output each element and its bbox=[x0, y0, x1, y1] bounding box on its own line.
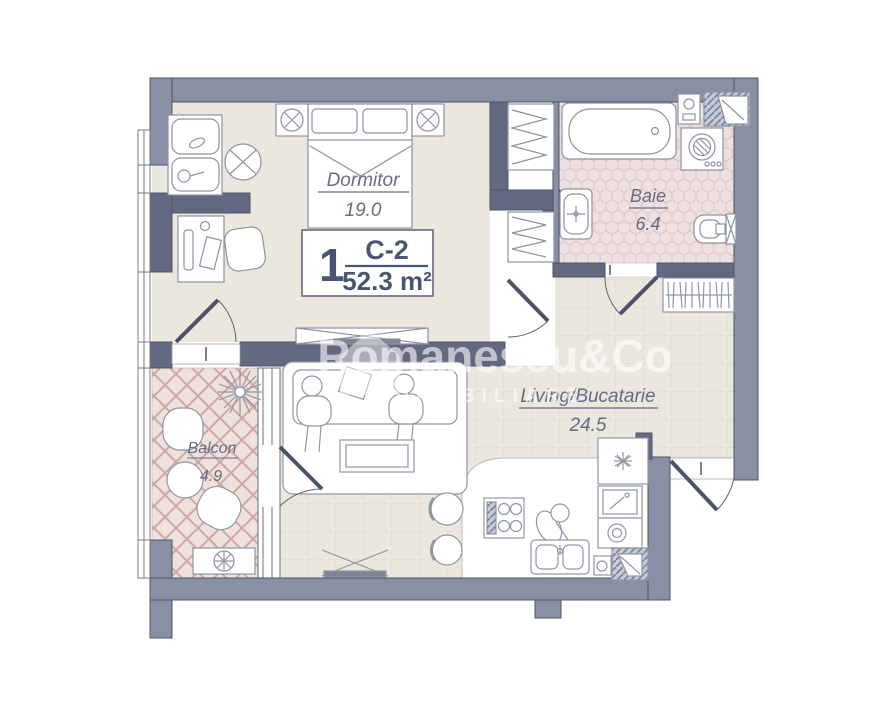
wall-top bbox=[150, 78, 758, 102]
wall-bottom-stub bbox=[535, 600, 561, 618]
label-balcon: Balcon bbox=[188, 440, 237, 457]
kitchen-hob bbox=[598, 438, 648, 484]
coffee-table bbox=[340, 440, 414, 472]
area-living: 24.5 bbox=[569, 415, 607, 436]
kitchen-double-sink bbox=[531, 540, 589, 574]
bathroom-sink bbox=[560, 189, 592, 239]
wall-left-pier bbox=[150, 193, 172, 272]
wall-bath-bottom-left bbox=[553, 263, 605, 277]
wall-bedroom-right bbox=[490, 102, 508, 192]
wall-balcony-corner bbox=[150, 342, 172, 368]
nightstand-lamp-left bbox=[276, 104, 308, 136]
desk-chair bbox=[223, 226, 266, 273]
window-left-band bbox=[138, 130, 150, 578]
area-dormitor: 19.0 bbox=[345, 200, 382, 221]
watermark-tagline: IMOBILIARE bbox=[404, 386, 586, 407]
unit-code: C-2 bbox=[365, 235, 409, 265]
label-baie: Baie bbox=[630, 186, 666, 206]
stove bbox=[484, 498, 524, 538]
hallway-closet bbox=[663, 278, 734, 312]
floor-plan-page: Dormitor 19.0 Baie 6.4 Living/Bucatarie … bbox=[0, 0, 880, 720]
wardrobe-nook bbox=[508, 104, 554, 262]
bar-stool-1 bbox=[430, 493, 463, 525]
desk bbox=[178, 216, 224, 282]
area-balcon: 4.9 bbox=[200, 468, 222, 485]
ac-unit bbox=[193, 548, 255, 574]
area-baie: 6.4 bbox=[635, 214, 660, 234]
balcony-glazing bbox=[258, 368, 280, 578]
door-bedroom-living bbox=[508, 280, 548, 337]
watermark-name: Romanescu&Co bbox=[317, 330, 672, 382]
unit-area: 52.3 m² bbox=[342, 266, 432, 296]
unit-number: 1 bbox=[319, 239, 345, 291]
vanity-stool bbox=[225, 144, 261, 180]
bathroom-duct bbox=[726, 214, 736, 244]
floor-plan: Dormitor 19.0 Baie 6.4 Living/Bucatarie … bbox=[0, 0, 880, 720]
unit-label-box: 1 C-2 52.3 m² bbox=[302, 230, 433, 296]
washing-machine bbox=[681, 128, 723, 170]
wall-nib bbox=[490, 190, 560, 210]
wall-right bbox=[734, 78, 758, 480]
label-dormitor: Dormitor bbox=[327, 170, 401, 191]
door-entrance bbox=[670, 458, 734, 510]
wall-entrance-column bbox=[648, 457, 670, 600]
vanity bbox=[168, 115, 222, 195]
wall-left-arm bbox=[172, 193, 250, 213]
kitchen-round-sink bbox=[598, 518, 642, 548]
wall-bottom bbox=[150, 578, 670, 600]
bathroom-corner-shaft bbox=[678, 92, 750, 126]
balcony-table bbox=[167, 462, 203, 498]
bar-stool-2 bbox=[431, 535, 462, 565]
wall-bath-bottom-right bbox=[657, 263, 734, 277]
kitchen-prep-sink bbox=[598, 486, 642, 518]
nightstand-lamp-right bbox=[412, 104, 444, 136]
bathtub bbox=[562, 103, 676, 159]
